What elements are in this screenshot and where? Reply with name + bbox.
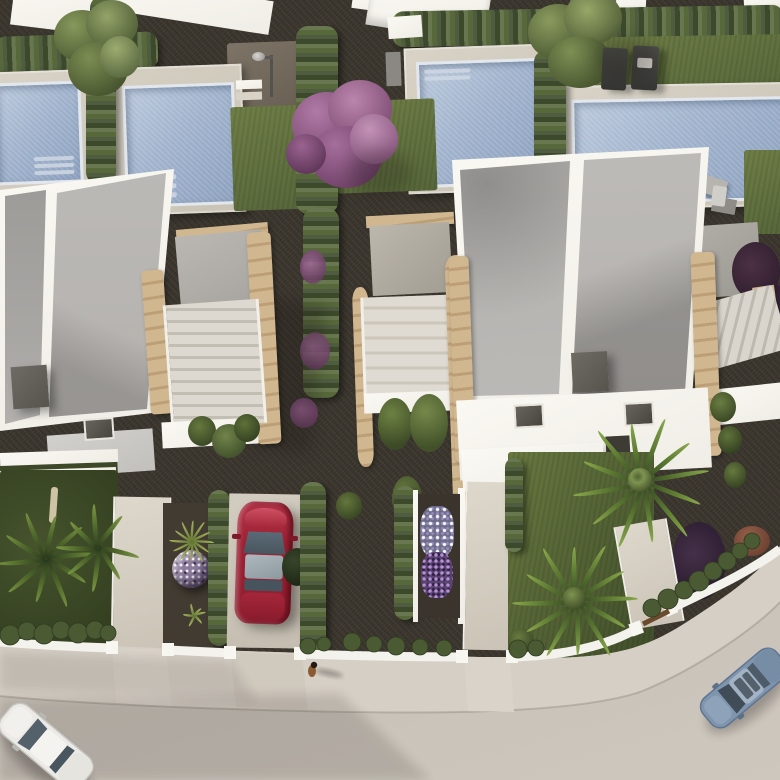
front-wall-segment bbox=[0, 642, 112, 648]
driveway-apron bbox=[464, 657, 514, 712]
wall-post bbox=[456, 650, 468, 663]
front-wall-segment bbox=[300, 654, 462, 657]
wall-post bbox=[224, 646, 236, 659]
palm-crown bbox=[563, 587, 585, 609]
tree-shadow bbox=[348, 150, 412, 196]
wall-post bbox=[106, 641, 118, 654]
palm-crown bbox=[628, 468, 652, 492]
wall-post bbox=[162, 643, 174, 656]
street-layer bbox=[0, 0, 780, 780]
front-wall-segment bbox=[168, 650, 230, 653]
tree-shadow bbox=[594, 36, 654, 80]
aerial-villa-render bbox=[0, 0, 780, 780]
